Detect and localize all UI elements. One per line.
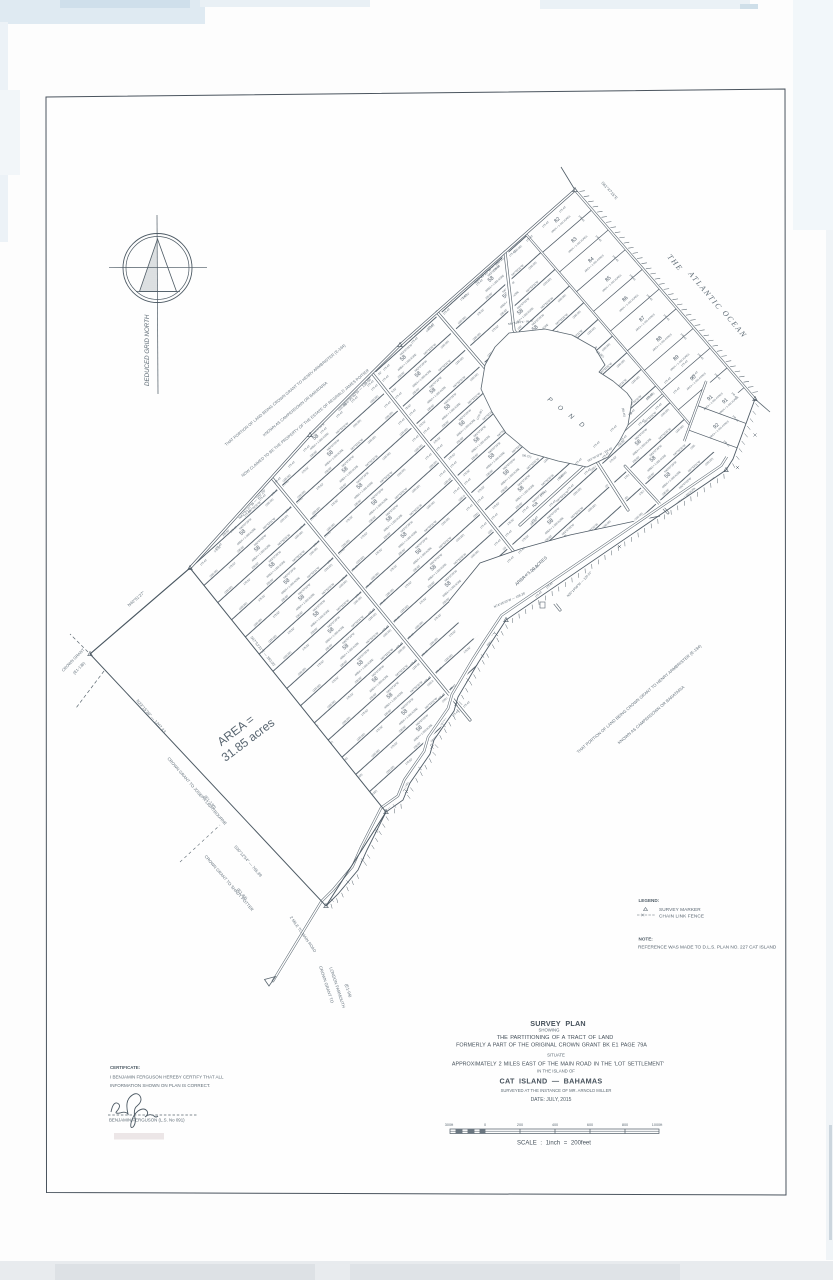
svg-text:300ft: 300ft bbox=[445, 1123, 454, 1127]
svg-text:400: 400 bbox=[552, 1123, 558, 1127]
svg-text:THE PARTITIONING OF A TRACT OF: THE PARTITIONING OF A TRACT OF LAND bbox=[497, 1035, 614, 1041]
svg-text:I BENJAMIN FERGUSON HEREBY CER: I BENJAMIN FERGUSON HEREBY CERTIFY THAT … bbox=[110, 1075, 224, 1080]
svg-text:DEDUCED GRID NORTH: DEDUCED GRID NORTH bbox=[144, 314, 151, 386]
svg-text:CERTIFICATE:: CERTIFICATE: bbox=[110, 1065, 141, 1070]
svg-text:SURVEY MARKER: SURVEY MARKER bbox=[659, 907, 701, 912]
svg-text:BENJAMIN FERGUSON (L.S. No 091: BENJAMIN FERGUSON (L.S. No 091) bbox=[109, 1118, 185, 1123]
svg-text:0: 0 bbox=[484, 1123, 486, 1127]
svg-text:800: 800 bbox=[622, 1123, 628, 1127]
svg-text:SHOWING: SHOWING bbox=[538, 1027, 560, 1032]
svg-text:INFORMATION SHOWN ON PLAN IS C: INFORMATION SHOWN ON PLAN IS CORRECT. bbox=[110, 1083, 210, 1088]
svg-text:SITUATE: SITUATE bbox=[547, 1052, 565, 1057]
svg-text:CAT ISLAND — BAHAMAS: CAT ISLAND — BAHAMAS bbox=[500, 1077, 603, 1086]
svg-text:1000ft: 1000ft bbox=[652, 1123, 664, 1127]
svg-text:SURVEYED AT THE INSTANCE OF MR: SURVEYED AT THE INSTANCE OF MR. ARNOLD M… bbox=[501, 1088, 612, 1093]
svg-text:REFERENCE WAS MADE TO D.L.S. P: REFERENCE WAS MADE TO D.L.S. PLAN NO. 22… bbox=[638, 944, 777, 949]
svg-text:SCALE : 1inch = 200feet: SCALE : 1inch = 200feet bbox=[517, 1141, 591, 1147]
svg-text:FORMERLY A PART OF THE ORIGINA: FORMERLY A PART OF THE ORIGINAL CROWN GR… bbox=[456, 1043, 647, 1049]
svg-text:APPROXIMATELY 2 MILES EAST OF: APPROXIMATELY 2 MILES EAST OF THE MAIN R… bbox=[452, 1062, 664, 1068]
svg-text:200: 200 bbox=[517, 1123, 523, 1127]
svg-text:NOTE:: NOTE: bbox=[639, 937, 654, 942]
svg-text:LEGEND:: LEGEND: bbox=[639, 898, 660, 903]
svg-text:DATE: JULY, 2015: DATE: JULY, 2015 bbox=[531, 1097, 572, 1103]
svg-text:IN THE ISLAND OF: IN THE ISLAND OF bbox=[537, 1068, 575, 1073]
svg-text:CHAIN LINK FENCE: CHAIN LINK FENCE bbox=[659, 914, 704, 919]
svg-text:600: 600 bbox=[587, 1123, 593, 1127]
